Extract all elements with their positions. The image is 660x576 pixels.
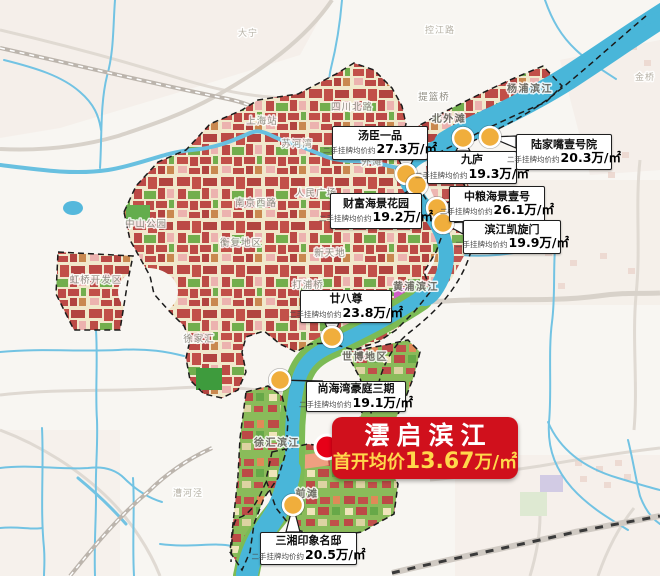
map-label: 新天地	[314, 247, 346, 259]
price-marker-icon	[322, 327, 342, 347]
map-label: 提篮桥	[418, 91, 450, 103]
banner-price-prefix: 首开均价	[333, 452, 405, 473]
property-price: 二手挂牌均价约19.2万/㎡	[319, 210, 433, 224]
property-callout: 滨江凯旋门 二手挂牌均价约19.9万/㎡	[463, 220, 561, 254]
banner-price-unit: 万/㎡	[475, 452, 518, 473]
property-callout: 汤臣一品 二手挂牌均价约27.3万/㎡	[332, 126, 428, 160]
map-label: 衡复地区	[220, 237, 262, 249]
map-label: 上海站	[246, 115, 278, 127]
property-name: 三湘印象名邸	[276, 535, 342, 547]
property-price: 二手挂牌均价约26.1万/㎡	[440, 203, 554, 217]
property-price: 二手挂牌均价约19.3万/㎡	[415, 167, 529, 181]
map-label: 大宁	[238, 27, 258, 39]
map-label: 苏河湾	[281, 138, 313, 150]
property-callout: 九庐 二手挂牌均价约19.3万/㎡	[427, 151, 517, 184]
property-price: 二手挂牌均价约19.9万/㎡	[455, 236, 569, 250]
map-label: 杨浦滨江	[507, 82, 553, 95]
property-callout: 廿八尊 二手挂牌均价约23.8万/㎡	[300, 290, 392, 323]
property-price: 二手挂牌均价约20.5万/㎡	[252, 548, 366, 562]
property-callout: 财富海景花园 二手挂牌均价约19.2万/㎡	[330, 193, 422, 229]
banner-title: 澐启滨江	[332, 422, 518, 450]
banner-price: 首开均价13.67万/㎡	[332, 450, 518, 474]
map-label: 虹桥开发区	[70, 274, 123, 286]
highlight-banner: 澐启滨江 首开均价13.67万/㎡	[332, 417, 518, 479]
map-label: 黄浦滨江	[393, 280, 439, 293]
map-label: 北外滩	[432, 112, 467, 125]
property-price: 二手挂牌均价约27.3万/㎡	[323, 142, 437, 156]
price-marker-icon	[270, 370, 290, 390]
property-callout: 三湘印象名邸 二手挂牌均价约20.5万/㎡	[260, 532, 357, 565]
map-label: 漕河泾	[173, 487, 203, 499]
map-label: 金桥	[635, 71, 655, 83]
property-name: 廿八尊	[330, 293, 363, 305]
map-stage: 大宁控江路金桥四川北路上海站提篮桥杨浦滨江北外滩苏河湾外滩人民广场南京西路中山公…	[0, 0, 660, 576]
property-callout: 中粮海景壹号 二手挂牌均价约26.1万/㎡	[449, 186, 545, 222]
banner-price-value: 13.67	[405, 449, 475, 474]
map-label: 四川北路	[331, 101, 373, 113]
map-label: 世博地区	[342, 350, 388, 363]
property-price: 二手挂牌均价约20.3万/㎡	[507, 151, 621, 165]
map-label: 徐家汇	[183, 333, 215, 345]
property-price: 二手挂牌均价约19.1万/㎡	[299, 396, 413, 410]
map-label: 徐汇滨江	[253, 436, 300, 449]
property-price: 二手挂牌均价约23.8万/㎡	[289, 306, 403, 320]
base-map: 大宁控江路金桥四川北路上海站提篮桥杨浦滨江北外滩苏河湾外滩人民广场南京西路中山公…	[0, 0, 660, 576]
map-label: 南京西路	[235, 197, 277, 209]
property-name: 尚海湾豪庭三期	[318, 383, 395, 395]
map-label: 控江路	[425, 24, 455, 36]
property-callout: 陆家嘴壹号院 二手挂牌均价约20.3万/㎡	[516, 134, 612, 170]
price-marker-icon	[480, 127, 500, 147]
price-marker-icon	[283, 495, 303, 515]
price-marker-icon	[453, 128, 473, 148]
map-label: 中山公园	[125, 218, 167, 230]
property-name: 九庐	[461, 154, 483, 166]
property-callout: 尚海湾豪庭三期 二手挂牌均价约19.1万/㎡	[306, 381, 406, 412]
